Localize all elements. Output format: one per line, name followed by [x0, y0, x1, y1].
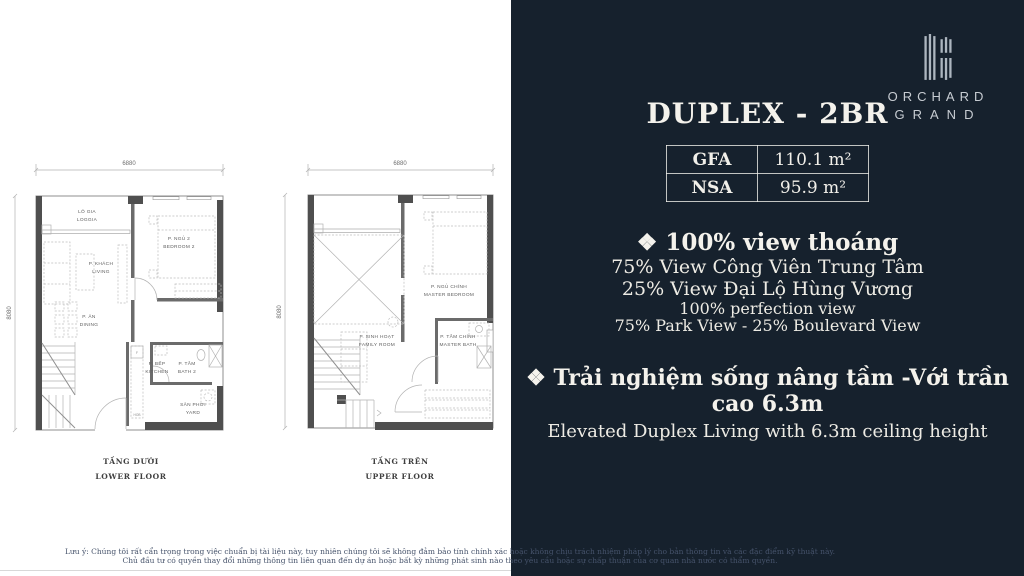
view-line-4: 75% Park View - 25% Boulevard View — [511, 317, 1024, 334]
room-family-en: FAMILY ROOM — [359, 342, 395, 348]
spec-table: GFA 110.1 m² NSA 95.9 m² — [666, 145, 869, 202]
caption-lower-en: LOWER FLOOR — [95, 472, 166, 481]
hob-label: HOB — [134, 413, 141, 417]
room-bath2-vi: P. TẮM — [178, 359, 195, 367]
floorplan-lower: 6880 8080 — [5, 150, 255, 495]
room-loggia-vi: LÔ GIA — [78, 208, 96, 215]
spec-nsa-value: 95.9 m² — [758, 174, 869, 202]
room-living-en: LIVING — [92, 269, 110, 275]
room-master-bedroom-en: MASTER BEDROOM — [424, 292, 474, 298]
table-row: NSA 95.9 m² — [667, 174, 869, 202]
disclaimer-line-2: Chủ đầu tư có quyền thay đổi những thông… — [30, 556, 870, 565]
stairs-upper — [314, 338, 381, 428]
void-cross — [314, 235, 404, 324]
highlight-view-heading: ❖ 100% view thoáng — [511, 229, 1024, 256]
spec-gfa-label: GFA — [667, 146, 758, 174]
room-family-vi: P. SINH HOẠT — [360, 334, 395, 340]
caption-upper-vi: TẦNG TRÊN — [371, 456, 428, 466]
room-yard-vi: SÂN PHƠI — [180, 401, 206, 408]
brochure-page: 6880 8080 — [0, 0, 1024, 576]
room-labels-lower: LÔ GIA LOGGIA P. KHÁCH LIVING P. NGỦ 2 B… — [77, 208, 206, 417]
dim-width-upper: 6880 — [393, 161, 407, 167]
room-bedroom2-vi: P. NGỦ 2 — [168, 235, 190, 242]
highlight-view: ❖ 100% view thoáng 75% View Công Viên Tr… — [511, 229, 1024, 334]
dim-height-upper: 8080 — [277, 305, 283, 319]
bottom-divider — [0, 570, 511, 571]
doors-upper — [395, 356, 438, 412]
room-labels-upper: P. NGỦ CHÍNH MASTER BEDROOM P. SINH HOẠT… — [359, 283, 477, 348]
info-panel: ORCHARD GRAND DUPLEX - 2BR GFA 110.1 m² … — [511, 0, 1024, 576]
disclaimer-line-1: Lưu ý: Chúng tôi rất cẩn trọng trong việ… — [30, 547, 870, 556]
room-bath2-en: BATH 2 — [178, 369, 196, 375]
dim-height-lower: 8080 — [7, 306, 13, 320]
panel-content: DUPLEX - 2BR GFA 110.1 m² NSA 95.9 m² ❖ … — [511, 0, 1024, 442]
unit-title: DUPLEX - 2BR — [511, 97, 1024, 130]
stairs-lower — [42, 342, 75, 428]
fridge-label: F — [136, 351, 138, 355]
highlight-ceiling-sub: Elevated Duplex Living with 6.3m ceiling… — [511, 421, 1024, 442]
room-master-bedroom-vi: P. NGỦ CHÍNH — [431, 283, 467, 290]
table-row: GFA 110.1 m² — [667, 146, 869, 174]
disclaimer: Lưu ý: Chúng tôi rất cẩn trọng trong việ… — [30, 547, 870, 565]
room-master-bath-vi: P. TẮM CHÍNH — [440, 332, 476, 340]
view-line-2: 25% View Đại Lộ Hùng Vương — [511, 278, 1024, 300]
highlight-ceiling-heading: ❖ Trải nghiệm sống nâng tầm -Với trần ca… — [511, 365, 1024, 417]
view-line-3: 100% perfection view — [511, 300, 1024, 317]
room-master-bath-en: MASTER BATH — [439, 342, 476, 348]
floorplan-upper: 6880 8080 — [275, 150, 525, 495]
room-living-vi: P. KHÁCH — [89, 260, 114, 267]
dim-width-lower: 6880 — [122, 161, 136, 167]
spec-nsa-label: NSA — [667, 174, 758, 202]
spec-gfa-value: 110.1 m² — [758, 146, 869, 174]
walls-upper — [308, 195, 493, 430]
room-loggia-en: LOGGIA — [77, 217, 98, 223]
caption-upper-en: UPPER FLOOR — [366, 472, 435, 481]
room-kitchen-vi: P. BẾP — [149, 360, 166, 367]
room-yard-en: YARD — [186, 410, 200, 416]
room-bedroom2-en: BEDROOM 2 — [163, 244, 195, 250]
caption-lower-vi: TẦNG DƯỚI — [103, 456, 159, 466]
room-dining-en: DINING — [80, 322, 99, 328]
room-dining-vi: P. ĂN — [82, 313, 96, 320]
room-kitchen-en: KITCHEN — [145, 369, 168, 375]
walls-lower — [36, 196, 223, 430]
highlight-ceiling: ❖ Trải nghiệm sống nâng tầm -Với trần ca… — [511, 365, 1024, 442]
view-line-1: 75% View Công Viên Trung Tâm — [511, 256, 1024, 278]
